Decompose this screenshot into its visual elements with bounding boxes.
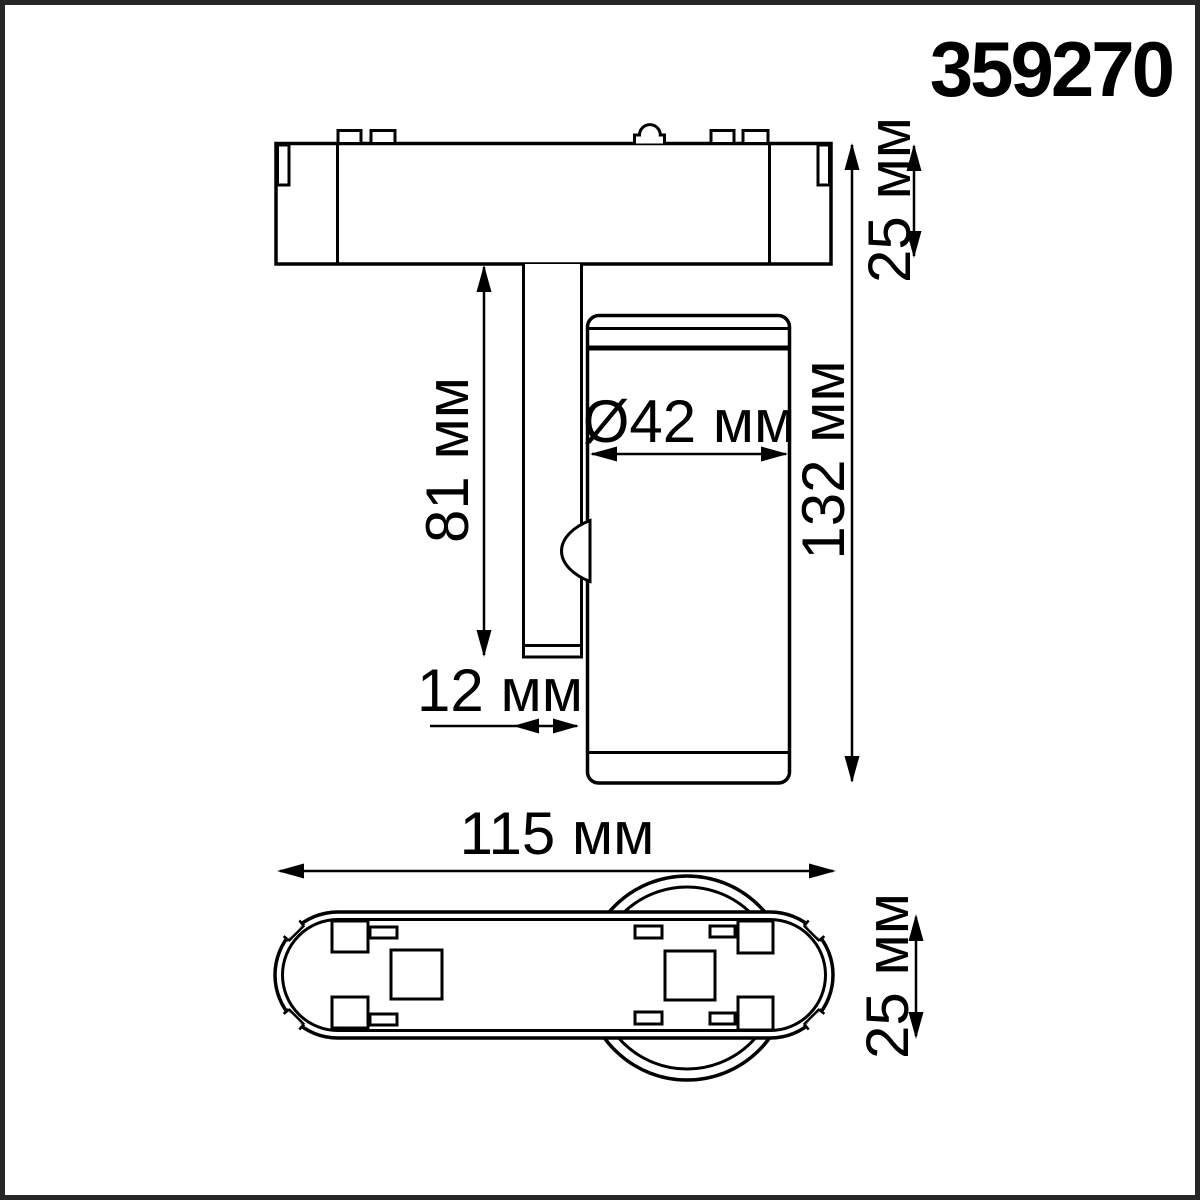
dim-label-head-diameter: Ø42 мм — [583, 388, 796, 455]
dim-label-body-width: 25 мм — [854, 893, 921, 1059]
dim-label-adapter-height: 25 мм — [856, 117, 923, 283]
technical-drawing-page: 359270 81 мм 1 — [0, 0, 1200, 1200]
track-light-dimension-drawing: 359270 81 мм 1 — [0, 0, 1200, 1200]
arrowhead-up — [477, 265, 492, 292]
adapter-tab — [711, 131, 734, 144]
arrowhead-right — [809, 864, 836, 879]
lamp-cylinder — [588, 316, 790, 784]
track-adapter-body — [276, 144, 831, 265]
adapter-tab — [338, 131, 361, 144]
dim-label-body-length: 115 мм — [460, 800, 655, 867]
arrowhead-down — [845, 756, 860, 783]
adapter-tab — [371, 131, 395, 144]
adapter-dome-button — [635, 125, 665, 144]
stem — [524, 264, 582, 657]
bottom-view — [275, 876, 833, 1080]
part-number: 359270 — [930, 25, 1173, 113]
adapter-base-outline — [275, 912, 833, 1038]
dim-label-stem-width: 12 мм — [417, 657, 583, 724]
arrowhead-down — [477, 630, 492, 657]
arrowhead-left — [277, 864, 304, 879]
adapter-tab — [743, 131, 768, 144]
dim-label-total-height: 132 мм — [790, 360, 857, 559]
dim-label-stem-length: 81 мм — [414, 377, 481, 543]
